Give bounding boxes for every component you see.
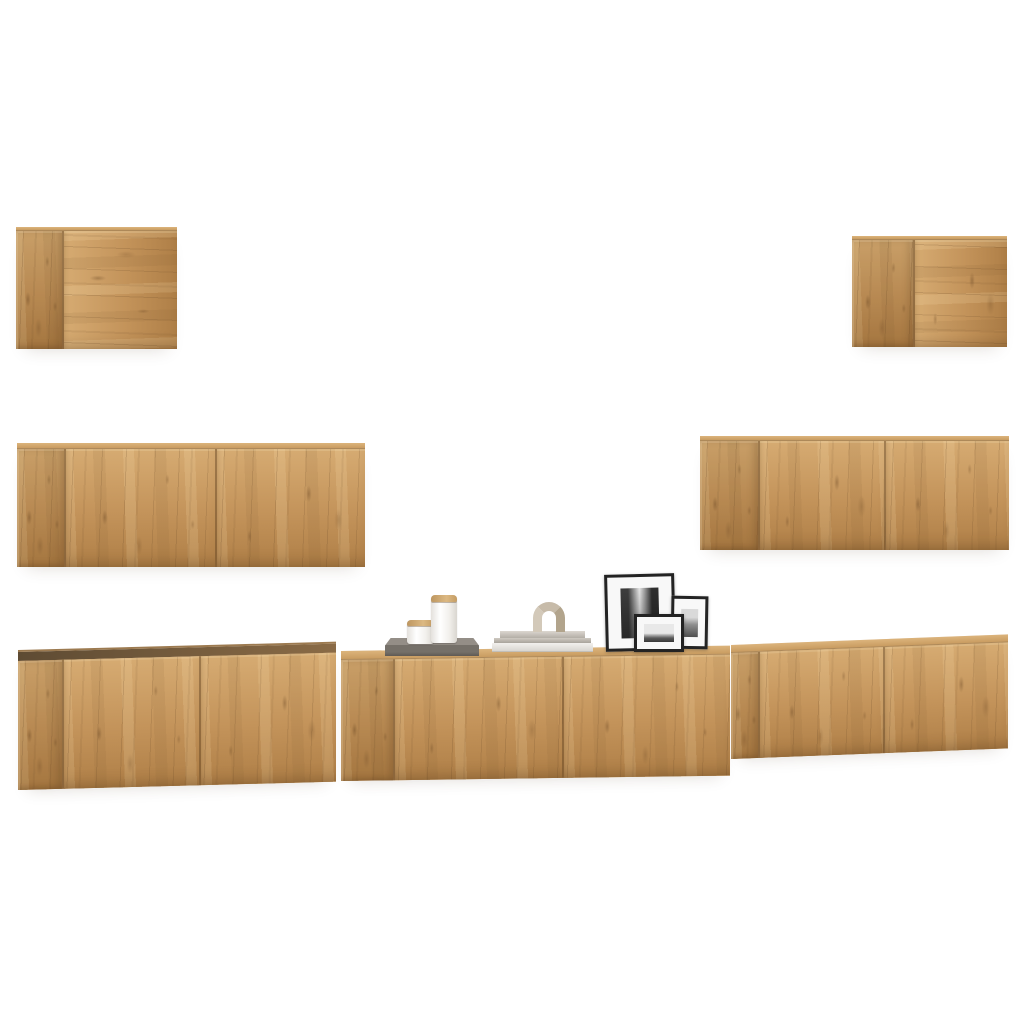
cabinet-door <box>915 240 1007 347</box>
book <box>492 643 593 652</box>
decor-jar-tall <box>431 595 457 643</box>
cabinet-side-panel <box>18 660 64 790</box>
wall-cabinet-middle-right <box>700 436 1009 550</box>
cabinet-front <box>64 231 177 349</box>
cabinet-body <box>18 653 336 790</box>
cabinet-body <box>341 655 730 781</box>
cabinet-door <box>64 231 177 349</box>
cabinet-side-panel <box>17 449 66 567</box>
cabinet-side-panel <box>731 652 760 759</box>
cabinet-body <box>17 449 365 567</box>
cabinet-door-left <box>760 647 883 758</box>
product-photo-canvas <box>0 0 1024 1024</box>
picture-frame-medium <box>634 614 684 652</box>
cabinet-door-left <box>64 656 199 789</box>
bw-skyline-photo <box>644 624 674 642</box>
wall-cabinet-middle-left <box>17 443 365 567</box>
decor-jar-small <box>407 620 434 644</box>
cabinet-side-panel <box>852 240 915 347</box>
cabinet-door-right <box>562 655 731 778</box>
wall-cabinet-top-right <box>852 236 1007 347</box>
cabinet-door-right <box>199 653 336 786</box>
cabinet-body <box>700 441 1009 550</box>
cabinet-front <box>64 653 336 789</box>
tv-cabinet-bottom-center <box>341 646 730 781</box>
cabinet-door-right <box>883 642 1008 753</box>
cabinet-front <box>66 449 365 567</box>
cabinet-body <box>731 642 1008 759</box>
tv-cabinet-bottom-right <box>731 634 1008 759</box>
tv-cabinet-bottom-left <box>18 642 336 790</box>
cabinet-door-right <box>884 441 1010 550</box>
cabinet-door-right <box>215 449 366 567</box>
jar-wood-lid <box>431 595 457 602</box>
cabinet-side-panel <box>700 441 760 550</box>
cabinet-side-panel <box>16 231 64 349</box>
cabinet-door-left <box>66 449 215 567</box>
cabinet-door-left <box>395 657 562 780</box>
cabinet-front <box>760 441 1009 550</box>
decor-book-stack <box>492 631 593 652</box>
cabinet-door-left <box>760 441 884 550</box>
cabinet-body <box>852 240 1007 347</box>
decor-arch-sculpture <box>533 602 565 632</box>
jar-wood-lid <box>407 620 434 626</box>
book <box>500 631 585 638</box>
cabinet-front <box>395 655 730 781</box>
wall-cabinet-top-left <box>16 227 177 349</box>
cabinet-front <box>760 642 1008 758</box>
cabinet-side-panel <box>341 659 395 781</box>
cabinet-body <box>16 231 177 349</box>
cabinet-front <box>915 240 1007 347</box>
